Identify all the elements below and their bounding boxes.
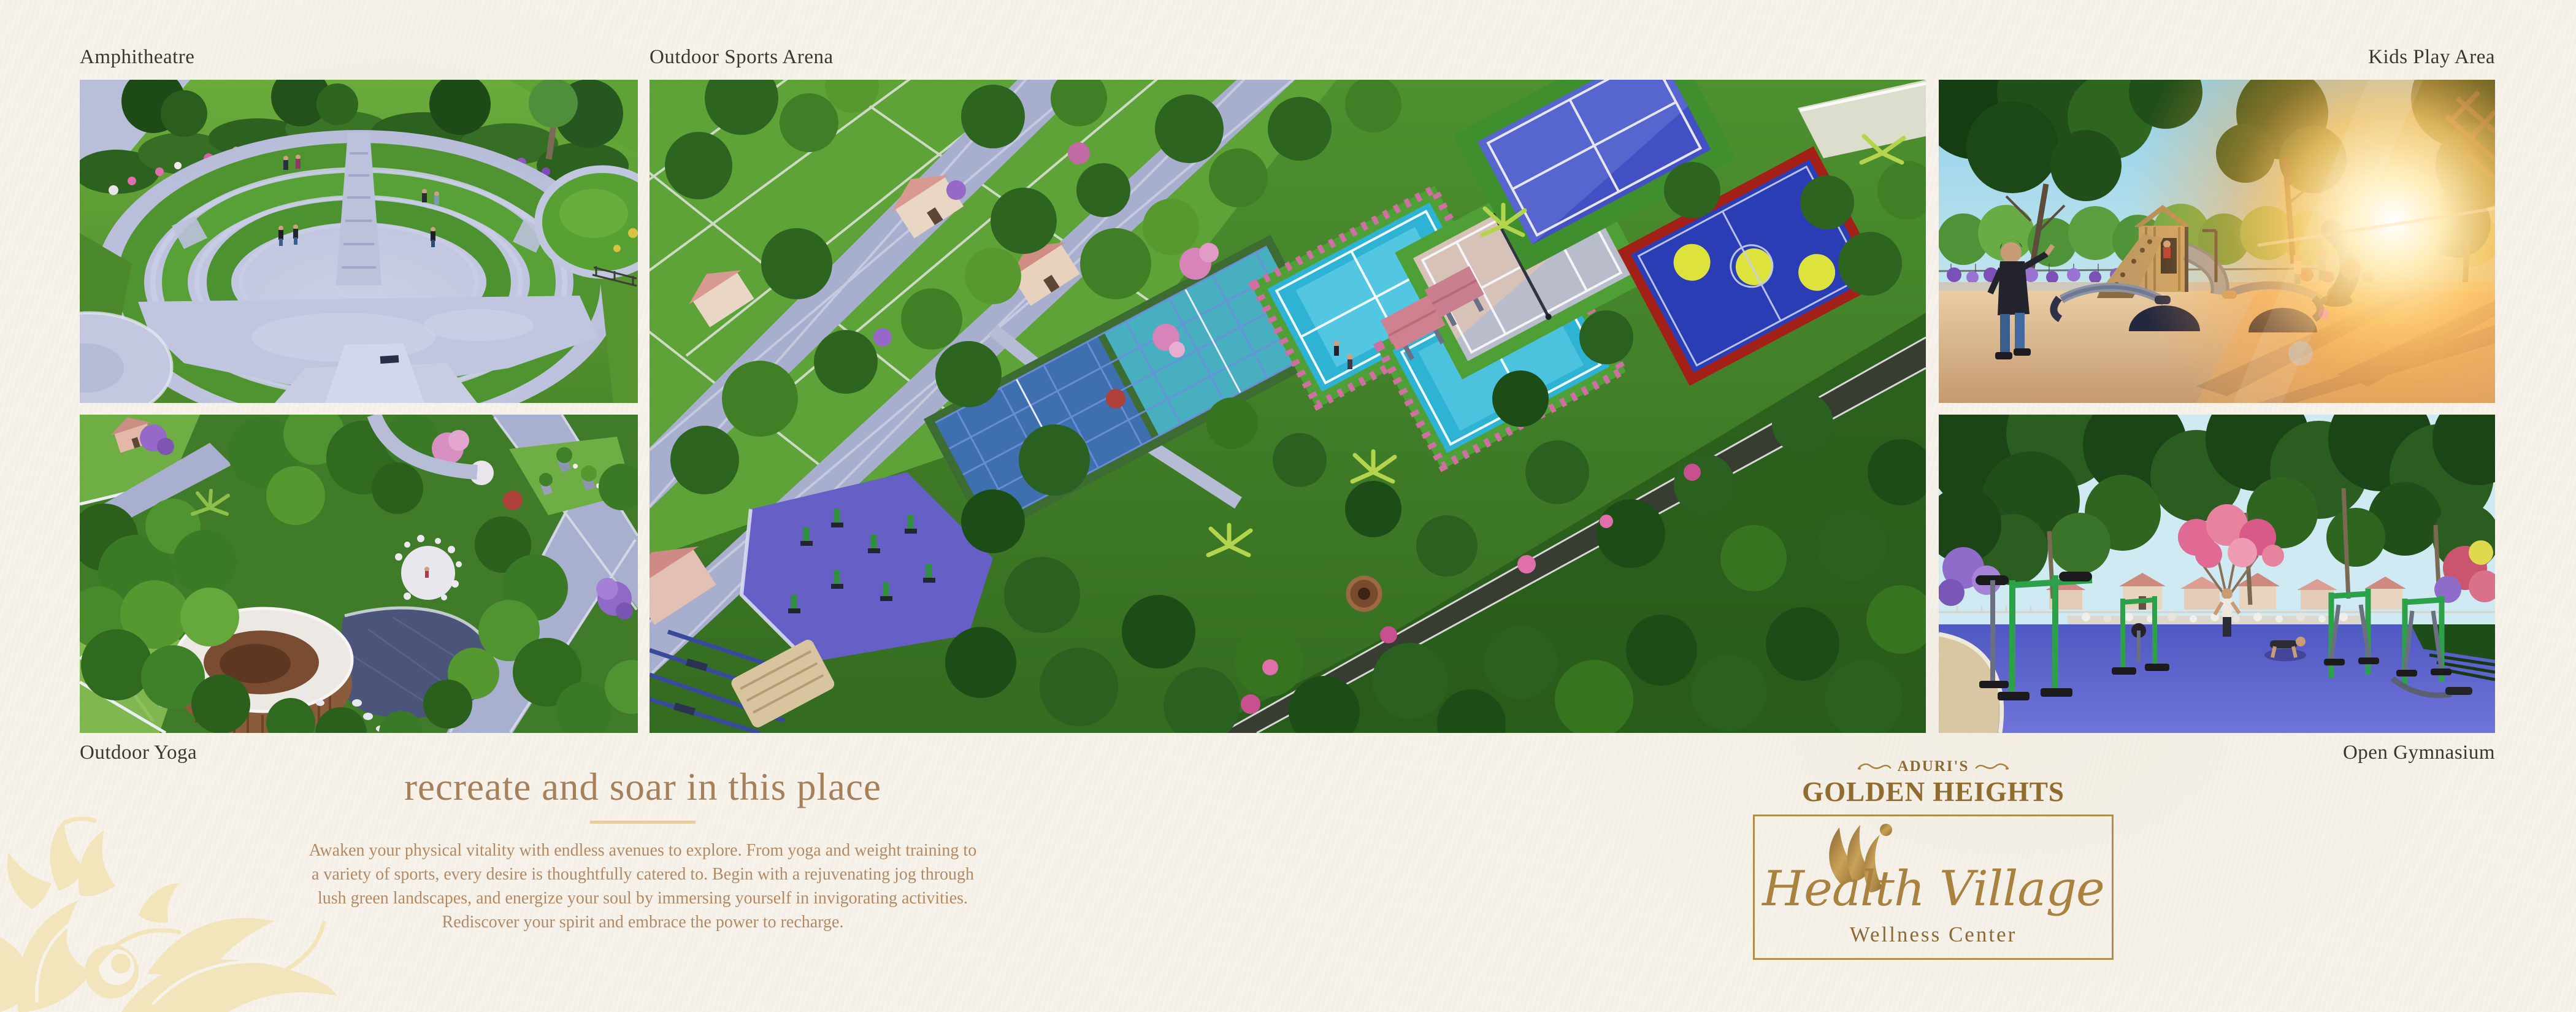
- outdoor-sports-arena-illustration: [650, 80, 1926, 733]
- page-title: recreate and soar in this place: [200, 765, 1086, 808]
- headline-divider: [590, 821, 696, 824]
- open-gymnasium-photo: [1939, 415, 2495, 733]
- body-copy-line: lush green landscapes, and energize your…: [200, 886, 1086, 910]
- label-open-gymnasium: Open Gymnasium: [2343, 740, 2495, 765]
- flourish-right-icon: [1975, 761, 2009, 772]
- brochure-page: Amphitheatre Outdoor Sports Arena Kids P…: [0, 0, 2576, 1012]
- body-copy-line: a variety of sports, every desire is tho…: [200, 862, 1086, 886]
- brand-tagline: Wellness Center: [1755, 922, 2112, 948]
- brand-name: GOLDEN HEIGHTS: [1753, 776, 2114, 807]
- outdoor-sports-arena-photo: [650, 80, 1926, 733]
- headline-section: recreate and soar in this place Awaken y…: [200, 765, 1086, 934]
- brand-prefix: ADURI'S: [1898, 758, 1969, 775]
- body-copy-line: Rediscover your spirit and embrace the p…: [200, 910, 1086, 934]
- subbrand-name: Health Village: [1755, 863, 2112, 914]
- outdoor-yoga-photo: [80, 415, 638, 733]
- brand-block: ADURI'S GOLDEN HEIGHTS Health Village W: [1753, 758, 2114, 960]
- kids-play-area-photo: [1939, 80, 2495, 403]
- body-copy-line: Awaken your physical vitality with endle…: [200, 838, 1086, 862]
- body-copy: Awaken your physical vitality with endle…: [200, 838, 1086, 934]
- label-kids-play-area: Kids Play Area: [2368, 44, 2495, 70]
- health-village-emblem: Health Village Wellness Center: [1753, 815, 2114, 960]
- label-outdoor-sports-arena: Outdoor Sports Arena: [650, 44, 834, 70]
- flourish-left-icon: [1857, 761, 1892, 772]
- kids-play-area-illustration: [1939, 80, 2495, 403]
- amphitheatre-photo: [80, 80, 638, 403]
- open-gymnasium-illustration: [1939, 415, 2495, 733]
- brand-prefix-row: ADURI'S: [1753, 758, 2114, 775]
- label-amphitheatre: Amphitheatre: [80, 44, 194, 70]
- amphitheatre-illustration: [80, 80, 638, 403]
- label-outdoor-yoga: Outdoor Yoga: [80, 740, 197, 765]
- outdoor-yoga-illustration: [80, 415, 638, 733]
